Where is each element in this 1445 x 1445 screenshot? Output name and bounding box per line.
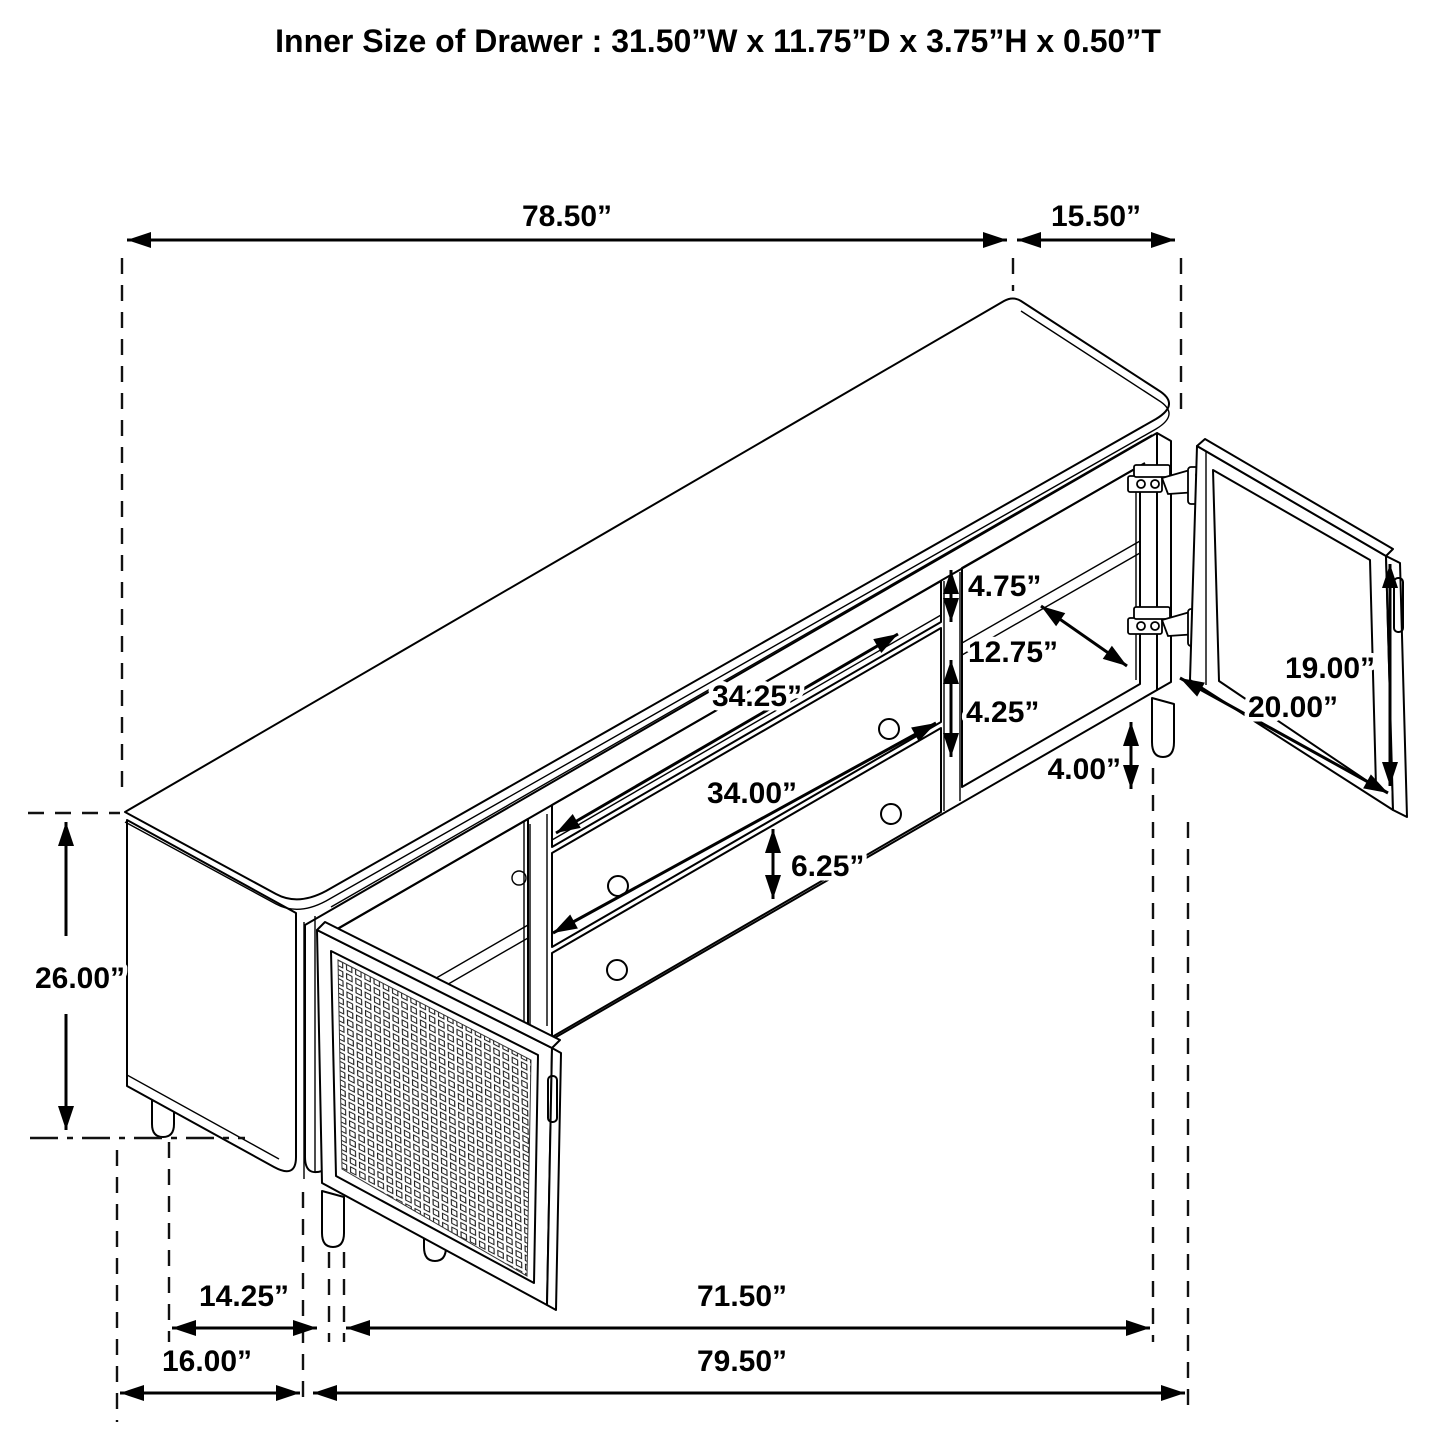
- dim-label-leg-height: 4.00”: [1048, 753, 1121, 786]
- page-title: Inner Size of Drawer : 31.50”W x 11.75”D…: [275, 23, 1161, 59]
- dim-label-top-width: 78.50”: [522, 200, 612, 233]
- dim-label-left-leg-offset: 14.25”: [199, 1280, 289, 1313]
- leg-front-right: [1152, 698, 1174, 757]
- leg-front-left: [322, 1191, 344, 1247]
- dim-label-base-span: 71.50”: [697, 1280, 787, 1313]
- dim-label-lower-drawer-height: 6.25”: [791, 850, 864, 883]
- dim-label-right-door-height: 19.00”: [1285, 652, 1375, 685]
- dim-label-upper-opening-width: 34.25”: [712, 680, 802, 713]
- dim-label-right-door-width: 20.00”: [1248, 691, 1338, 724]
- dim-label-right-opening-height: 4.25”: [966, 696, 1039, 729]
- dim-label-top-depth: 15.50”: [1051, 200, 1141, 233]
- dim-label-open-shelf-height: 4.75”: [968, 570, 1041, 603]
- dimension-diagram-canvas: 78.50” 15.50” 26.00” 4.75” 12.75” 4.25” …: [0, 0, 1445, 1445]
- dim-label-drawer-width: 34.00”: [707, 777, 797, 810]
- right-door: [1190, 439, 1407, 817]
- diagram-page: 78.50” 15.50” 26.00” 4.75” 12.75” 4.25” …: [0, 0, 1445, 1445]
- dim-label-right-shelf-width: 12.75”: [968, 636, 1058, 669]
- dim-label-overall-height: 26.00”: [35, 962, 125, 995]
- dim-label-overall-width: 79.50”: [697, 1345, 787, 1378]
- dim-label-left-depth: 16.00”: [162, 1345, 252, 1378]
